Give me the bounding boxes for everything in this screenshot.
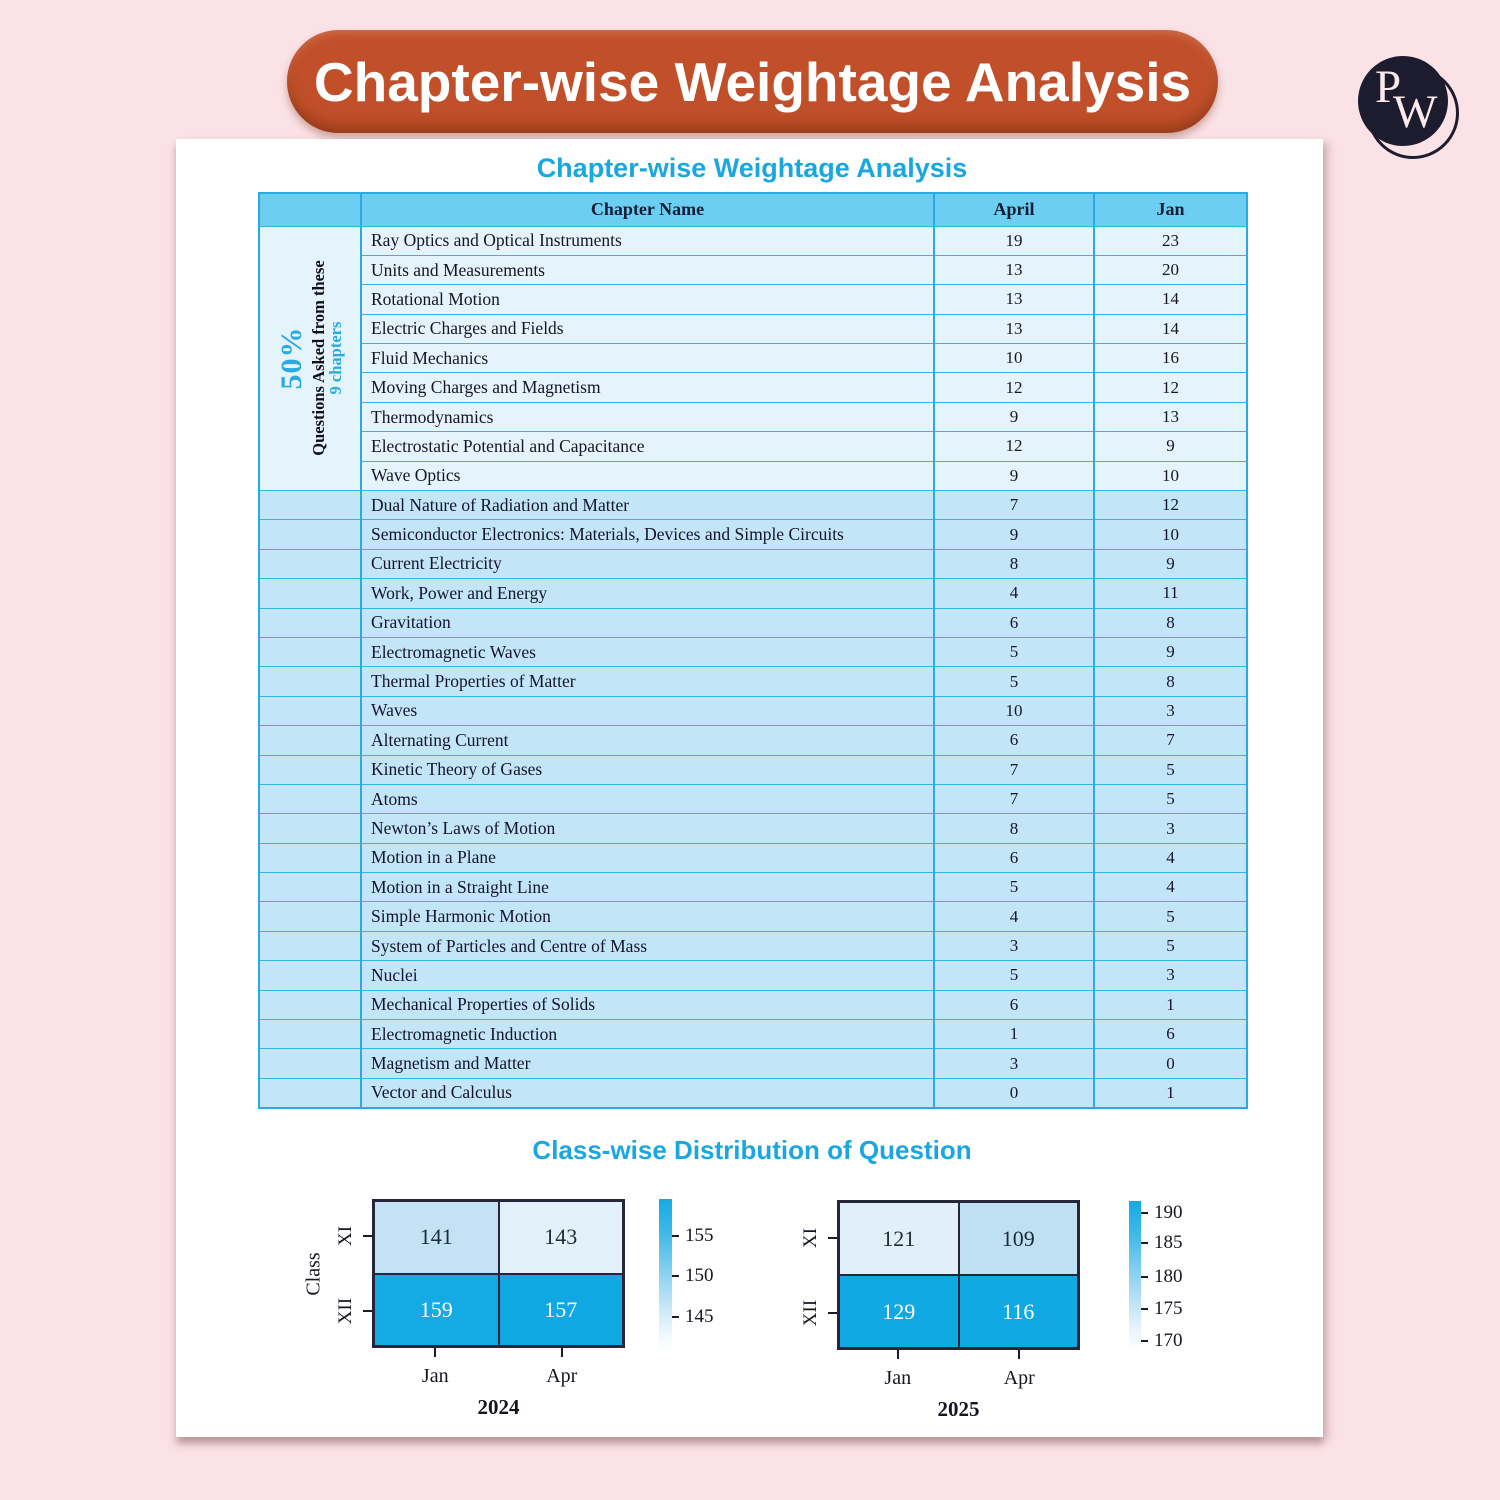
left-spacer-cell	[259, 608, 361, 637]
colorbar-gradient	[659, 1199, 672, 1352]
table-row: Alternating Current67	[259, 726, 1247, 755]
heatmap-2024: 141143159157XIXIIJanAprClass2024	[372, 1199, 625, 1348]
april-value-cell: 4	[934, 579, 1094, 608]
group-line2: 9 chapters	[327, 322, 344, 395]
jan-value-cell: 3	[1094, 696, 1247, 725]
april-value-cell: 0	[934, 1078, 1094, 1107]
chapter-name-cell: Nuclei	[361, 961, 934, 990]
x-tick-label: Apr	[1004, 1367, 1035, 1390]
chapter-name-cell: Wave Optics	[361, 461, 934, 490]
heatmap-cell: 116	[959, 1275, 1079, 1348]
jan-value-cell: 0	[1094, 1049, 1247, 1078]
colorbar-tick-mark	[1141, 1276, 1148, 1278]
group-line1: Questions Asked from these	[309, 261, 326, 456]
heatmap-2025: 121109129116XIXIIJanApr2025	[837, 1200, 1080, 1350]
april-value-cell: 5	[934, 873, 1094, 902]
table-row: Semiconductor Electronics: Materials, De…	[259, 520, 1247, 549]
banner-title: Chapter-wise Weightage Analysis	[314, 50, 1191, 114]
jan-value-cell: 7	[1094, 726, 1247, 755]
logo-letter-w: W	[1393, 85, 1437, 139]
table-row: Fluid Mechanics1016	[259, 344, 1247, 373]
table-row: Gravitation68	[259, 608, 1247, 637]
colorbar-tick-mark	[672, 1316, 679, 1318]
left-spacer-cell	[259, 696, 361, 725]
jan-value-cell: 6	[1094, 1020, 1247, 1049]
chapter-name-cell: Gravitation	[361, 608, 934, 637]
chapter-name-cell: Work, Power and Energy	[361, 579, 934, 608]
table-row: System of Particles and Centre of Mass35	[259, 931, 1247, 960]
jan-value-cell: 9	[1094, 637, 1247, 666]
left-spacer-cell	[259, 873, 361, 902]
jan-value-cell: 5	[1094, 931, 1247, 960]
chapter-name-cell: Alternating Current	[361, 726, 934, 755]
chapter-name-cell: Magnetism and Matter	[361, 1049, 934, 1078]
colorbar-tick-label: 185	[1154, 1232, 1183, 1254]
y-tick-mark	[828, 1237, 837, 1239]
chapter-name-cell: Fluid Mechanics	[361, 344, 934, 373]
chapter-name-cell: Thermodynamics	[361, 402, 934, 431]
chapter-name-cell: Motion in a Plane	[361, 843, 934, 872]
table-header-row: Chapter Name April Jan	[259, 193, 1247, 226]
y-tick-label: XI	[800, 1227, 822, 1247]
table-row: Motion in a Plane64	[259, 843, 1247, 872]
colorbar-tick-label: 190	[1154, 1202, 1183, 1224]
table-row: Electric Charges and Fields1314	[259, 314, 1247, 343]
colorbar-tick-mark	[672, 1235, 679, 1237]
april-value-cell: 13	[934, 314, 1094, 343]
jan-value-cell: 5	[1094, 755, 1247, 784]
chapter-name-cell: Rotational Motion	[361, 285, 934, 314]
group-percent: 50%	[276, 327, 308, 390]
april-value-cell: 13	[934, 255, 1094, 284]
table-row: Electromagnetic Induction16	[259, 1020, 1247, 1049]
left-spacer-cell	[259, 784, 361, 813]
april-value-cell: 9	[934, 461, 1094, 490]
table-row: Nuclei53	[259, 961, 1247, 990]
header-chapter-name: Chapter Name	[361, 193, 934, 226]
april-value-cell: 3	[934, 931, 1094, 960]
jan-value-cell: 4	[1094, 873, 1247, 902]
colorbar-tick-mark	[1141, 1242, 1148, 1244]
jan-value-cell: 8	[1094, 608, 1247, 637]
colorbar-tick-label: 145	[685, 1306, 714, 1328]
table-row: Atoms75	[259, 784, 1247, 813]
chapter-name-cell: Ray Optics and Optical Instruments	[361, 226, 934, 255]
table-row: Motion in a Straight Line54	[259, 873, 1247, 902]
x-tick-mark	[434, 1348, 436, 1357]
left-spacer-cell	[259, 843, 361, 872]
y-tick-label: XII	[800, 1299, 822, 1325]
colorbar-tick-label: 180	[1154, 1266, 1183, 1288]
colorbar-2024: 155150145	[659, 1199, 672, 1352]
april-value-cell: 5	[934, 667, 1094, 696]
left-spacer-cell	[259, 990, 361, 1019]
colorbar-tick-mark	[1141, 1212, 1148, 1214]
table-row: Current Electricity89	[259, 549, 1247, 578]
heatmap-cell: 141	[374, 1201, 499, 1274]
april-value-cell: 12	[934, 373, 1094, 402]
charts-title: Class-wise Distribution of Question	[258, 1135, 1246, 1166]
april-value-cell: 7	[934, 491, 1094, 520]
chapter-name-cell: Newton’s Laws of Motion	[361, 814, 934, 843]
april-value-cell: 7	[934, 755, 1094, 784]
colorbar-tick-label: 175	[1154, 1298, 1183, 1320]
jan-value-cell: 12	[1094, 373, 1247, 402]
table-row: Magnetism and Matter30	[259, 1049, 1247, 1078]
heatmap-cell: 159	[374, 1274, 499, 1347]
x-tick-mark	[561, 1348, 563, 1357]
heatmap-cell: 143	[499, 1201, 624, 1274]
chapter-name-cell: Moving Charges and Magnetism	[361, 373, 934, 402]
heatmap-cell: 109	[959, 1202, 1079, 1275]
april-value-cell: 7	[934, 784, 1094, 813]
chapter-name-cell: Thermal Properties of Matter	[361, 667, 934, 696]
left-spacer-cell	[259, 1049, 361, 1078]
chapter-name-cell: Dual Nature of Radiation and Matter	[361, 491, 934, 520]
chapter-name-cell: Semiconductor Electronics: Materials, De…	[361, 520, 934, 549]
y-tick-label: XII	[335, 1298, 357, 1324]
table-row: Rotational Motion1314	[259, 285, 1247, 314]
x-tick-label: Jan	[422, 1365, 449, 1388]
chapter-name-cell: Electric Charges and Fields	[361, 314, 934, 343]
jan-value-cell: 3	[1094, 814, 1247, 843]
april-value-cell: 1	[934, 1020, 1094, 1049]
left-spacer-cell	[259, 549, 361, 578]
chapter-name-cell: System of Particles and Centre of Mass	[361, 931, 934, 960]
table-row: Vector and Calculus01	[259, 1078, 1247, 1107]
left-spacer-cell	[259, 637, 361, 666]
chapter-name-cell: Motion in a Straight Line	[361, 873, 934, 902]
april-value-cell: 13	[934, 285, 1094, 314]
april-value-cell: 6	[934, 608, 1094, 637]
jan-value-cell: 13	[1094, 402, 1247, 431]
jan-value-cell: 16	[1094, 344, 1247, 373]
left-spacer-cell	[259, 931, 361, 960]
colorbar-gradient	[1129, 1201, 1141, 1352]
jan-value-cell: 20	[1094, 255, 1247, 284]
left-spacer-cell	[259, 667, 361, 696]
jan-value-cell: 14	[1094, 314, 1247, 343]
left-spacer-cell	[259, 520, 361, 549]
chapter-name-cell: Current Electricity	[361, 549, 934, 578]
jan-value-cell: 9	[1094, 549, 1247, 578]
april-value-cell: 9	[934, 402, 1094, 431]
colorbar-tick-label: 155	[685, 1225, 714, 1247]
left-spacer-cell	[259, 814, 361, 843]
table-row: Thermal Properties of Matter58	[259, 667, 1247, 696]
header-jan: Jan	[1094, 193, 1247, 226]
banner: Chapter-wise Weightage Analysis	[287, 30, 1218, 133]
april-value-cell: 9	[934, 520, 1094, 549]
april-value-cell: 8	[934, 814, 1094, 843]
table-row: Work, Power and Energy411	[259, 579, 1247, 608]
april-value-cell: 19	[934, 226, 1094, 255]
table-row: Moving Charges and Magnetism1212	[259, 373, 1247, 402]
header-spacer-cell	[259, 193, 361, 226]
jan-value-cell: 10	[1094, 461, 1247, 490]
x-tick-label: Jan	[884, 1367, 911, 1390]
chapter-name-cell: Units and Measurements	[361, 255, 934, 284]
april-value-cell: 6	[934, 726, 1094, 755]
chapter-name-cell: Atoms	[361, 784, 934, 813]
april-value-cell: 6	[934, 990, 1094, 1019]
chapter-name-cell: Electromagnetic Induction	[361, 1020, 934, 1049]
left-spacer-cell	[259, 902, 361, 931]
colorbar-2025: 190185180175170	[1129, 1201, 1141, 1352]
heatmap-cell: 121	[839, 1202, 959, 1275]
table-row: Kinetic Theory of Gases75	[259, 755, 1247, 784]
table-row: Newton’s Laws of Motion83	[259, 814, 1247, 843]
left-spacer-cell	[259, 579, 361, 608]
table-row: 50%Questions Asked from these9 chaptersR…	[259, 226, 1247, 255]
x-tick-label: Apr	[546, 1365, 577, 1388]
left-spacer-cell	[259, 491, 361, 520]
jan-value-cell: 4	[1094, 843, 1247, 872]
heatmap-cell: 157	[499, 1274, 624, 1347]
jan-value-cell: 23	[1094, 226, 1247, 255]
year-label: 2024	[478, 1395, 520, 1420]
chapter-name-cell: Electrostatic Potential and Capacitance	[361, 432, 934, 461]
y-tick-mark	[828, 1312, 837, 1314]
x-tick-mark	[1018, 1350, 1020, 1359]
jan-value-cell: 5	[1094, 902, 1247, 931]
jan-value-cell: 5	[1094, 784, 1247, 813]
chapter-name-cell: Mechanical Properties of Solids	[361, 990, 934, 1019]
y-tick-mark	[363, 1235, 372, 1237]
table-title: Chapter-wise Weightage Analysis	[258, 153, 1246, 184]
heatmap-grid: 141143159157	[372, 1199, 625, 1348]
y-axis-label: Class	[303, 1252, 326, 1295]
jan-value-cell: 3	[1094, 961, 1247, 990]
left-spacer-cell	[259, 755, 361, 784]
jan-value-cell: 12	[1094, 491, 1247, 520]
y-tick-mark	[363, 1310, 372, 1312]
colorbar-tick-mark	[1141, 1308, 1148, 1310]
table-row: Mechanical Properties of Solids61	[259, 990, 1247, 1019]
colorbar-tick-mark	[672, 1275, 679, 1277]
table-row: Units and Measurements1320	[259, 255, 1247, 284]
table-row: Thermodynamics913	[259, 402, 1247, 431]
april-value-cell: 6	[934, 843, 1094, 872]
jan-value-cell: 9	[1094, 432, 1247, 461]
jan-value-cell: 1	[1094, 1078, 1247, 1107]
left-spacer-cell	[259, 1078, 361, 1107]
jan-value-cell: 8	[1094, 667, 1247, 696]
left-spacer-cell	[259, 961, 361, 990]
chapter-name-cell: Kinetic Theory of Gases	[361, 755, 934, 784]
april-value-cell: 5	[934, 961, 1094, 990]
jan-value-cell: 1	[1094, 990, 1247, 1019]
chapter-name-cell: Simple Harmonic Motion	[361, 902, 934, 931]
april-value-cell: 10	[934, 696, 1094, 725]
colorbar-tick-label: 150	[685, 1265, 714, 1287]
april-value-cell: 10	[934, 344, 1094, 373]
april-value-cell: 3	[934, 1049, 1094, 1078]
heatmap-cell: 129	[839, 1275, 959, 1348]
jan-value-cell: 10	[1094, 520, 1247, 549]
heatmap-grid: 121109129116	[837, 1200, 1080, 1350]
april-value-cell: 5	[934, 637, 1094, 666]
jan-value-cell: 11	[1094, 579, 1247, 608]
jan-value-cell: 14	[1094, 285, 1247, 314]
table-row: Waves103	[259, 696, 1247, 725]
x-tick-mark	[897, 1350, 899, 1359]
colorbar-tick-label: 170	[1154, 1330, 1183, 1352]
colorbar-tick-mark	[1141, 1340, 1148, 1342]
header-april: April	[934, 193, 1094, 226]
chapter-name-cell: Electromagnetic Waves	[361, 637, 934, 666]
weightage-table: Chapter Name April Jan 50%Questions Aske…	[258, 192, 1248, 1109]
april-value-cell: 4	[934, 902, 1094, 931]
chapter-name-cell: Vector and Calculus	[361, 1078, 934, 1107]
y-tick-label: XI	[335, 1226, 357, 1246]
april-value-cell: 12	[934, 432, 1094, 461]
table-row: Dual Nature of Radiation and Matter712	[259, 491, 1247, 520]
left-spacer-cell	[259, 726, 361, 755]
table-row: Wave Optics910	[259, 461, 1247, 490]
year-label: 2025	[938, 1397, 980, 1422]
table-row: Electrostatic Potential and Capacitance1…	[259, 432, 1247, 461]
group-label-cell: 50%Questions Asked from these9 chapters	[259, 226, 361, 491]
chapter-name-cell: Waves	[361, 696, 934, 725]
table-row: Electromagnetic Waves59	[259, 637, 1247, 666]
table-row: Simple Harmonic Motion45	[259, 902, 1247, 931]
left-spacer-cell	[259, 1020, 361, 1049]
april-value-cell: 8	[934, 549, 1094, 578]
pw-logo: P W	[1358, 56, 1462, 160]
